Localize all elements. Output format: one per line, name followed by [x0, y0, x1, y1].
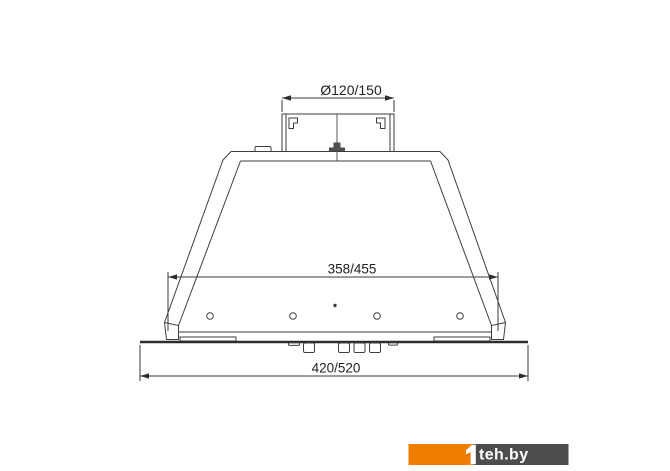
hole-3 — [374, 313, 381, 320]
technical-drawing-page: Ø120/150 — [0, 0, 670, 471]
bottom-bump-left — [289, 343, 300, 346]
extension-lines — [282, 100, 394, 112]
hood-right-outer-slant — [440, 152, 506, 323]
hood-dimension-drawing: Ø120/150 — [0, 0, 670, 471]
hood-left-inner-slant — [179, 161, 241, 326]
center-dot — [333, 304, 336, 307]
arrowhead-left — [140, 373, 149, 378]
hood-left-foot — [165, 323, 179, 340]
hood-body — [165, 147, 506, 340]
arrowhead-left — [282, 95, 291, 100]
duct-clip-right — [377, 118, 386, 129]
arrowhead-left — [168, 274, 177, 279]
watermark-logo: teh.by — [409, 444, 569, 465]
base-plane — [140, 337, 528, 353]
hole-2 — [290, 313, 297, 320]
hood-top-tab — [255, 147, 271, 152]
bottom-bump-right — [389, 343, 398, 345]
bottom-tab-1 — [304, 343, 315, 353]
extension-lines — [168, 272, 498, 331]
dimension-overall-width: 420/520 — [140, 345, 528, 381]
dimension-inner-width-label: 358/455 — [328, 262, 377, 277]
arrowhead-right — [489, 274, 498, 279]
watermark-orange-block — [409, 444, 474, 465]
dimension-overall-width-label: 420/520 — [312, 361, 361, 376]
bottom-tab-4 — [370, 343, 381, 353]
hole-1 — [207, 313, 214, 320]
bottom-tab-3 — [354, 343, 365, 353]
duct-clip-left — [289, 118, 298, 129]
right-mount-strip — [434, 337, 490, 341]
dimension-duct-diameter: Ø120/150 — [282, 82, 394, 112]
arrowhead-right — [519, 373, 528, 378]
dimension-duct-diameter-label: Ø120/150 — [320, 82, 382, 98]
dimension-inner-width: 358/455 — [168, 262, 498, 332]
hood-bottom-holes — [207, 304, 464, 320]
arrowhead-right — [385, 95, 394, 100]
hole-4 — [457, 313, 464, 320]
bottom-tab-2 — [339, 343, 350, 353]
bottom-controls — [289, 343, 398, 353]
duct-connector — [282, 114, 394, 161]
hood-left-outer-slant — [165, 152, 232, 323]
duct-mount-bracket — [329, 143, 345, 152]
hood-right-inner-slant — [431, 161, 492, 326]
left-mount-strip — [180, 337, 236, 341]
watermark-site-name: teh.by — [479, 447, 529, 464]
